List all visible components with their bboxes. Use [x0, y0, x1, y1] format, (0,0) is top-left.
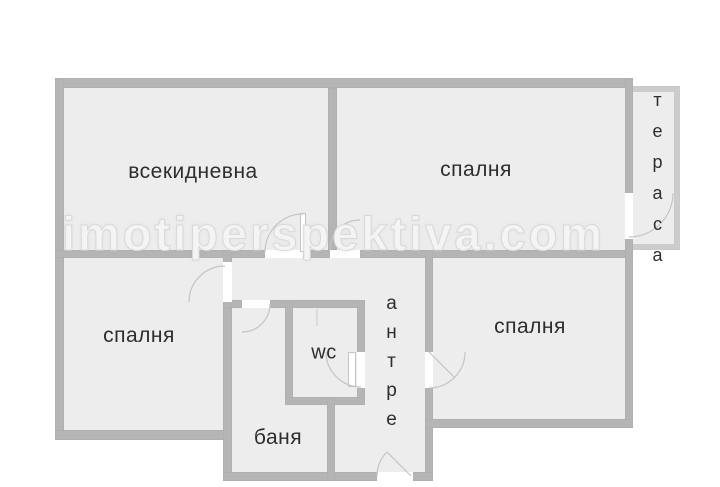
door-opening-terrace — [625, 193, 633, 239]
wall-wc-bottom — [285, 397, 365, 405]
wall-bedroom-bottom-right-bottom — [425, 419, 633, 428]
room-label-terrace: тераса — [647, 90, 668, 276]
door-opening-bedroom-bottom-right — [425, 352, 433, 388]
room-label-wc: wc — [311, 342, 336, 365]
floorplan-canvas: imotiperspektiva.com всекидневна спалня … — [0, 0, 720, 487]
door-opening-bath — [242, 300, 270, 308]
door-leaf-wc — [348, 352, 356, 387]
room-label-bath: баня — [254, 426, 302, 450]
wall-exterior-top — [55, 78, 633, 88]
wall-wc-left — [285, 300, 293, 405]
door-opening-entrance — [377, 472, 413, 481]
room-label-bedroom-bottom-right: спалня — [494, 315, 566, 339]
room-label-hallway: антре — [380, 293, 402, 438]
wall-terrace-right — [674, 86, 680, 250]
door-opening-bedroom-bottom-left — [223, 262, 232, 302]
door-opening-wc — [357, 352, 365, 388]
room-label-bedroom-top-right: спалня — [440, 158, 512, 182]
wall-bath-hall-divider — [327, 397, 335, 481]
room-label-bedroom-bottom-left: спалня — [103, 324, 175, 348]
wall-bedroom-bottom-left-bottom — [55, 430, 232, 440]
wall-exterior-right — [625, 78, 633, 428]
watermark-text: imotiperspektiva.com — [62, 206, 605, 261]
room-label-living: всекидневна — [128, 160, 257, 184]
